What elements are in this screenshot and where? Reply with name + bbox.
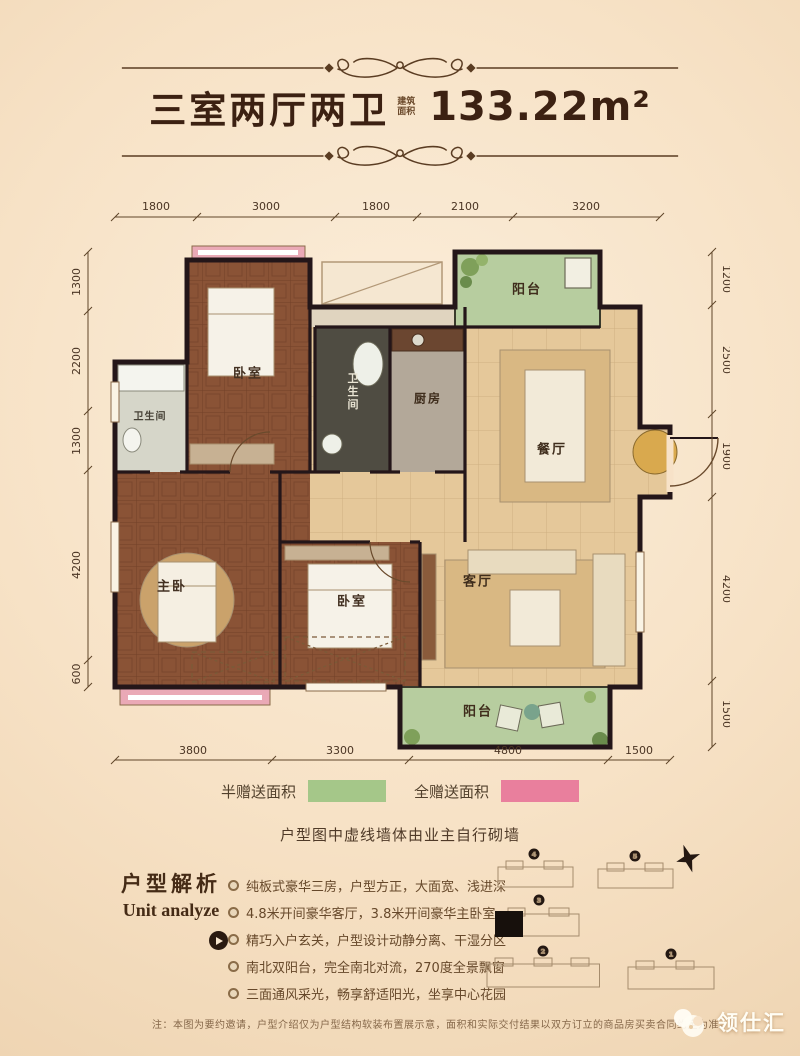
legend-swatch-green [308,780,386,802]
svg-text:2100: 2100 [451,200,479,213]
svg-text:2500: 2500 [720,346,730,374]
svg-text:1500: 1500 [625,744,653,757]
svg-text:1300: 1300 [70,427,83,455]
analysis-title-cn: 户型解析 [112,868,230,898]
legend-item-half-gift: 半赠送面积 [221,780,386,802]
analysis-title: 户型解析 Unit analyze [112,868,230,950]
laundry-alcove [310,307,465,327]
svg-text:5: 5 [633,853,638,861]
svg-text:4: 4 [532,851,537,859]
corridor-wood [187,472,310,542]
floorplan-drawing: 1800 3000 1800 2100 3200 3800 3300 4800 … [70,192,730,780]
svg-text:1300: 1300 [70,268,83,296]
analysis-title-en: Unit analyze [112,900,230,921]
label-kitchen: 厨房 [414,390,442,407]
site-map: 4 5 3 2 1 [478,833,718,1001]
bullet-text: 4.8米开间豪华客厅，3.8米开间豪华主卧室 [246,903,495,922]
svg-text:3300: 3300 [326,744,354,757]
label-master: 主卧 [157,576,187,595]
svg-text:3000: 3000 [252,200,280,213]
svg-text:600: 600 [70,664,83,685]
svg-text:4800: 4800 [494,744,522,757]
bullet-icon [228,907,239,918]
svg-text:2200: 2200 [70,347,83,375]
svg-text:1900: 1900 [720,442,730,470]
disclaimer-note: 注：本图为要约邀请，户型介绍仅为户型结构软装布置展示意，面积和实际交付结果以双方… [152,1016,730,1031]
svg-text:3200: 3200 [572,200,600,213]
svg-text:4200: 4200 [70,551,83,579]
bullet-icon [228,880,239,891]
legend: 半赠送面积 全赠送面积 [0,780,800,802]
bullet-icon [228,934,239,945]
building-5: 5 [598,851,673,889]
building-3-highlighted: 3 [495,895,579,938]
legend-label-full-gift: 全赠送面积 [414,781,489,802]
bullet-text: 南北双阳台，完全南北对流，270度全景飘窗 [246,957,505,976]
bullet-icon [228,988,239,999]
svg-text:4200: 4200 [720,575,730,603]
flourish-divider-bottom [120,142,680,170]
building-4: 4 [498,849,573,888]
brand-logo: 领仕汇 [669,1002,786,1042]
flourish-divider-top [120,54,680,82]
svg-text:1800: 1800 [142,200,170,213]
legend-swatch-pink [501,780,579,802]
bullet-text: 纯板式豪华三房，户型方正，大面宽、浅进深 [246,876,506,895]
svg-text:1800: 1800 [362,200,390,213]
logo-text: 领仕汇 [717,1007,786,1037]
bullet-icon [228,961,239,972]
floorplan-poster: 三室两厅两卫 建筑面积 133.22m² [0,0,800,1056]
page-title: 三室两厅两卫 建筑面积 133.22m² [0,80,800,134]
svg-text:1500: 1500 [720,700,730,728]
logo-icon [669,1002,709,1042]
svg-text:1200: 1200 [720,265,730,293]
svg-text:3: 3 [537,897,542,905]
area-value: 133.22m² [429,84,651,130]
label-bath2: 卫生间 [344,373,360,412]
label-balcony-top: 阳台 [512,279,542,298]
legend-label-half-gift: 半赠送面积 [221,781,296,802]
compass-icon [672,841,705,876]
label-bath1: 卫生间 [134,408,167,423]
legend-item-full-gift: 全赠送面积 [414,780,579,802]
svg-text:1: 1 [669,951,674,959]
stair-shaft [322,262,442,304]
label-bedroom2: 卧室 [337,591,367,610]
label-dining: 餐厅 [537,439,567,458]
building-2: 2 [487,946,600,988]
svg-text:2: 2 [541,948,546,956]
area-label: 建筑面积 [397,97,421,117]
bullet-text: 三面通风采光，畅享舒适阳光，坐享中心花园 [246,984,506,1003]
entry-door [670,435,718,492]
play-icon [209,931,228,950]
title-cn: 三室两厅两卫 [149,80,389,134]
balcony-bottom [400,687,610,748]
bullet-text: 精巧入户玄关，户型设计动静分离、干湿分区 [246,930,506,949]
label-living: 客厅 [463,571,493,590]
building-1: 1 [628,949,714,990]
label-bedroom1: 卧室 [233,363,263,382]
label-balcony-bottom: 阳台 [463,701,493,720]
svg-text:3800: 3800 [179,744,207,757]
